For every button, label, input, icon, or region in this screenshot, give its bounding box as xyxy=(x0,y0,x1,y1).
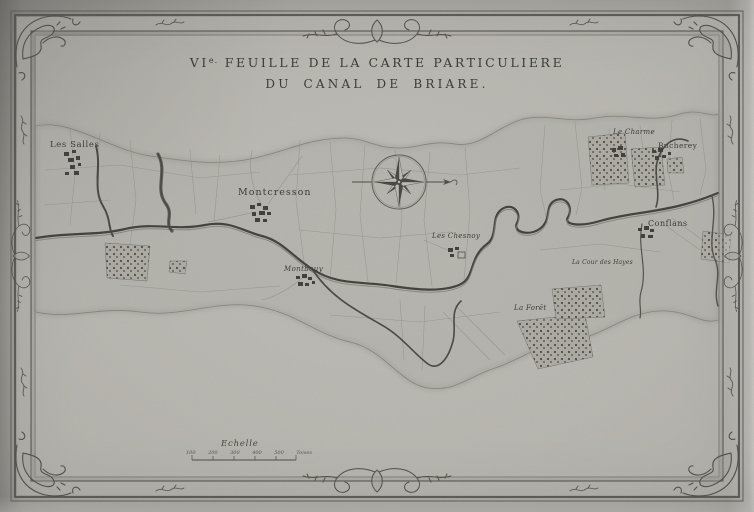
scale-tick-500: 500 xyxy=(274,451,284,456)
map-label-la-foret: La Forêt xyxy=(514,305,546,312)
map-label-les-chesnoy: Les Chesnoy xyxy=(432,233,480,240)
scale-label: Echelle xyxy=(221,440,259,449)
engraving-photo: VIe. FEUILLE DE LA CARTE PARTICULIERE DU… xyxy=(0,0,754,512)
map-label-les-salles: Les Salles xyxy=(50,141,99,150)
map-label-le-charme: Le Charme xyxy=(613,129,655,136)
map-label-bucherey: Bucherey xyxy=(658,142,697,150)
map-label-cour-des-hayes: La Cour des Hayes xyxy=(572,260,633,266)
map-label-conflans: Conflans xyxy=(648,220,688,228)
scale-tick-200: 200 xyxy=(208,451,218,456)
title-line1-text: FEUILLE DE LA CARTE PARTICULIERE xyxy=(225,55,565,70)
scale-tick-300: 300 xyxy=(230,451,240,456)
scale-tick-100: 100 xyxy=(186,451,196,456)
scale-numbers: 100 200 300 400 500 Toises xyxy=(186,451,312,456)
title-volume-suffix: e. xyxy=(209,56,218,65)
map-title-line2: DU CANAL DE BRIARE. xyxy=(265,78,488,90)
scale-unit: Toises xyxy=(296,451,312,456)
map-label-montcresson: Montcresson xyxy=(238,188,311,198)
map-title-line1: VIe. FEUILLE DE LA CARTE PARTICULIERE xyxy=(190,57,565,70)
title-volume-numeral: VI xyxy=(190,55,209,70)
map-label-montbouy: Montbouy xyxy=(284,266,323,273)
scale-tick-400: 400 xyxy=(252,451,262,456)
